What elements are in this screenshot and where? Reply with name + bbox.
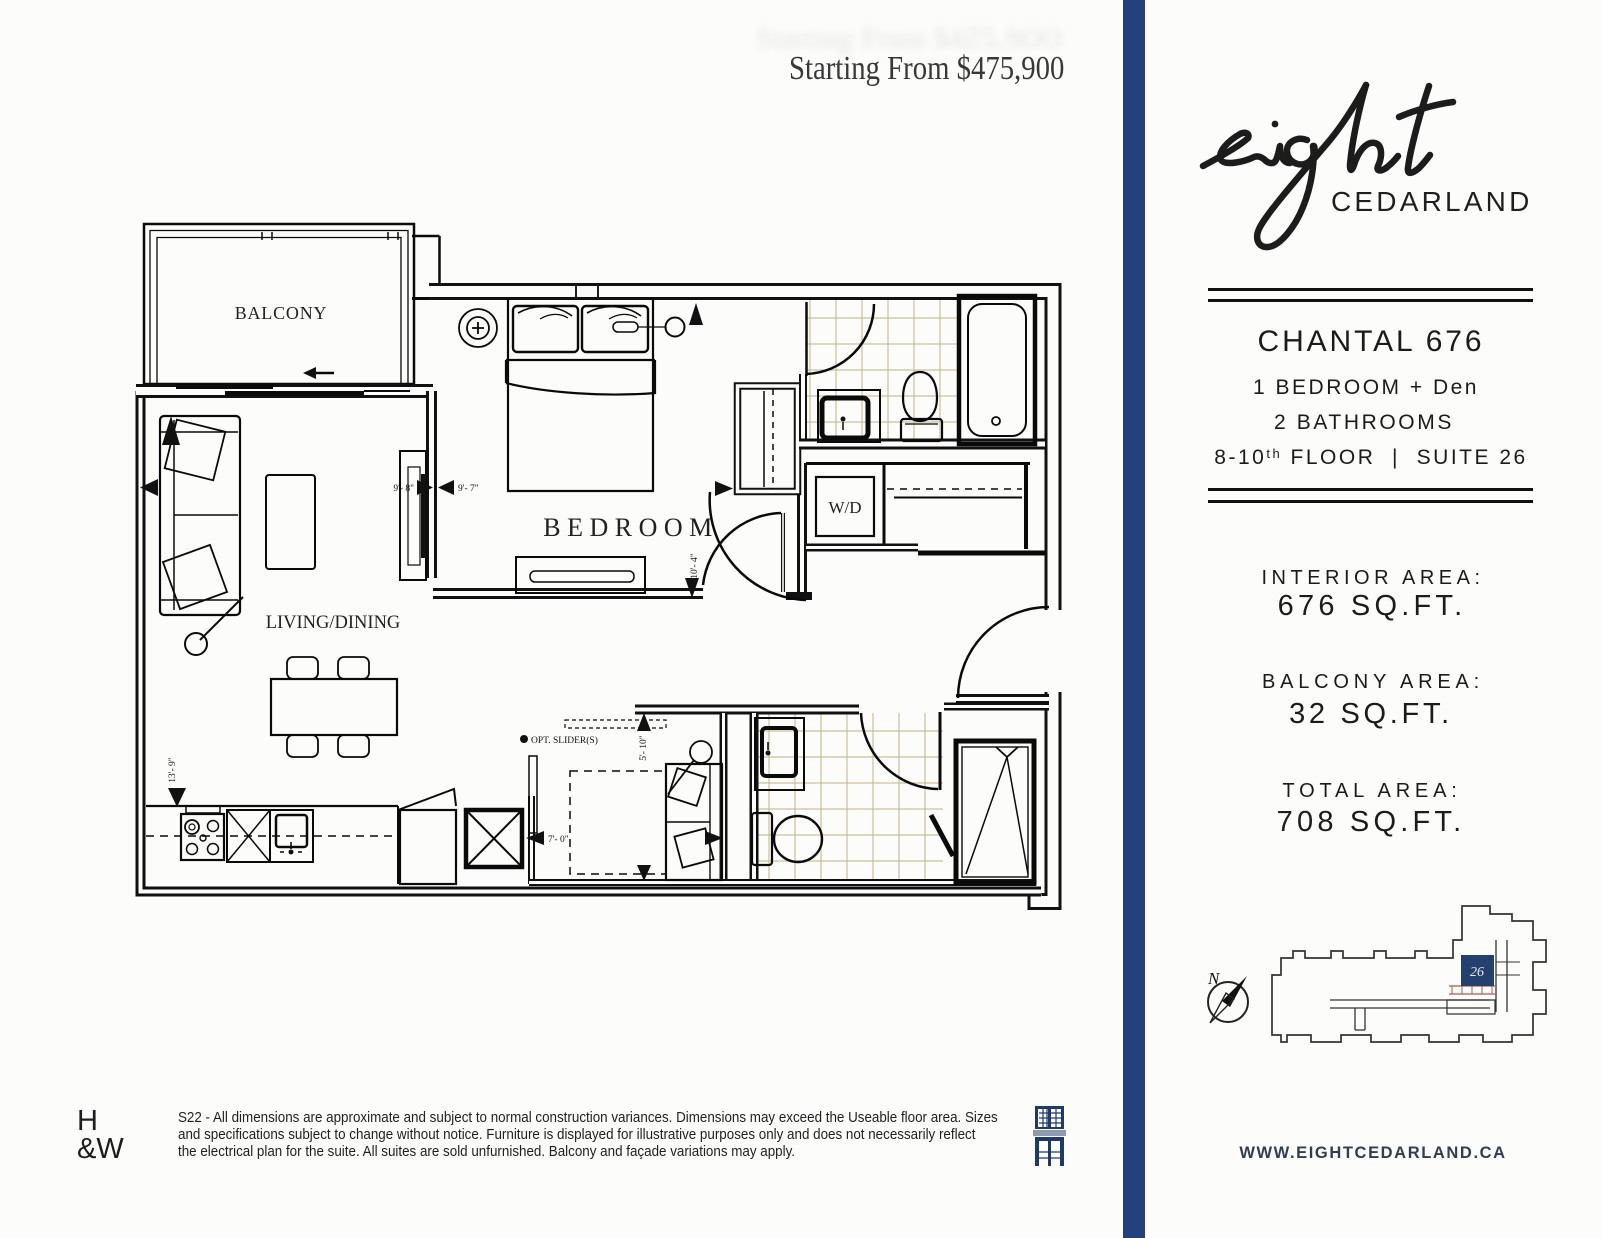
svg-text:W/D: W/D: [828, 498, 861, 517]
svg-text:9'- 8": 9'- 8": [393, 484, 414, 494]
svg-text:7'- 0": 7'- 0": [548, 835, 569, 845]
svg-text:OPT. SLIDER(S): OPT. SLIDER(S): [531, 735, 598, 746]
svg-text:26: 26: [1470, 965, 1484, 980]
svg-text:N: N: [1207, 969, 1221, 988]
svg-text:13'- 9": 13'- 9": [168, 757, 178, 783]
svg-text:5'- 10": 5'- 10": [639, 735, 649, 761]
svg-text:BALCONY: BALCONY: [235, 303, 328, 323]
svg-text:9'- 7": 9'- 7": [458, 484, 479, 494]
svg-text:CEDARLAND: CEDARLAND: [1331, 186, 1533, 217]
svg-text:10'- 4": 10'- 4": [690, 553, 700, 579]
svg-text:LIVING/DINING: LIVING/DINING: [266, 613, 401, 633]
svg-text:BEDROOM: BEDROOM: [543, 513, 719, 542]
